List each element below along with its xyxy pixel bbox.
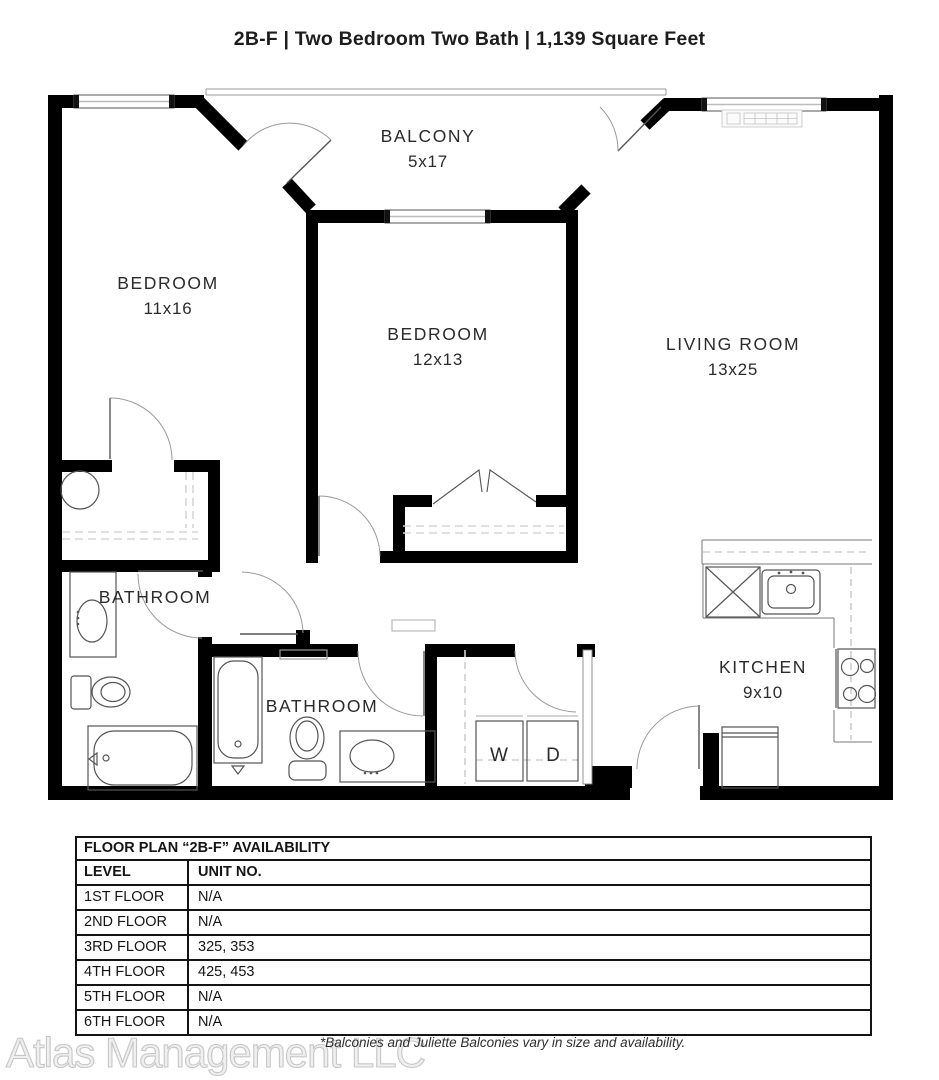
table-title: FLOOR PLAN “2B-F” AVAILABILITY bbox=[77, 838, 870, 859]
wall-top-left-a bbox=[48, 95, 74, 108]
toilet2-bowl bbox=[290, 717, 324, 759]
window-bedroom1 bbox=[74, 95, 174, 108]
floor-plan-drawing: BALCONY 5x17 BEDROOM 11x16 BEDROOM 12x13… bbox=[0, 0, 939, 820]
toilet1-bowl bbox=[92, 677, 130, 707]
door-arc-laundry bbox=[515, 651, 576, 712]
table-title-row: FLOOR PLAN “2B-F” AVAILABILITY bbox=[77, 838, 870, 859]
wall-bathroom1-right-a bbox=[198, 560, 212, 577]
toilet1-tank bbox=[71, 676, 91, 709]
row-level: 2ND FLOOR bbox=[77, 911, 189, 934]
wall-closet2-top-left bbox=[393, 495, 432, 507]
wall-exterior-bottom-left bbox=[48, 786, 630, 800]
wall-angled-bedroom1-hinge bbox=[287, 183, 311, 209]
bedroom1-dims: 11x16 bbox=[143, 299, 192, 318]
bathroom1-label: BATHROOM bbox=[99, 587, 212, 607]
table-row: 1ST FLOOR N/A bbox=[77, 884, 870, 909]
wall-bathroom1-right-b bbox=[198, 637, 212, 786]
row-unit: 425, 453 bbox=[189, 961, 870, 984]
wall-exterior-left bbox=[48, 95, 62, 800]
kitchen-dims: 9x10 bbox=[743, 683, 783, 702]
toilet2-tank bbox=[289, 761, 326, 780]
wall-angled-livingroom bbox=[645, 103, 668, 125]
window-livingroom bbox=[702, 98, 826, 111]
balcony-footnote: *Balconies and Juliette Balconies vary i… bbox=[320, 1035, 685, 1050]
counter-edges bbox=[703, 564, 872, 742]
door-arc-bedroom1 bbox=[242, 572, 303, 633]
bathroom2-label: BATHROOM bbox=[266, 696, 379, 716]
bedroom2-dims: 12x13 bbox=[413, 350, 463, 369]
heater-unit bbox=[722, 110, 802, 127]
table-row: 2ND FLOOR N/A bbox=[77, 909, 870, 934]
bedroom2-label: BEDROOM bbox=[387, 324, 489, 344]
door-arc-closet1 bbox=[110, 398, 172, 460]
door-arc-bedroom2 bbox=[319, 496, 380, 556]
balcony-railing bbox=[206, 89, 666, 95]
balcony-dims: 5x17 bbox=[408, 152, 448, 171]
door-arc-kitchen bbox=[637, 706, 699, 769]
wall-closet1-right bbox=[208, 460, 220, 572]
row-unit: 325, 353 bbox=[189, 936, 870, 959]
wall-laundry-top-left bbox=[437, 644, 515, 657]
livingroom-dims: 13x25 bbox=[708, 360, 758, 379]
tub1-spout bbox=[89, 753, 97, 765]
row-unit: N/A bbox=[189, 886, 870, 909]
door-leaf-balcony-livingroom bbox=[618, 107, 661, 151]
livingroom-label: LIVING ROOM bbox=[666, 334, 800, 354]
row-level: 5TH FLOOR bbox=[77, 986, 189, 1009]
wall-livingroom-left bbox=[566, 210, 578, 563]
table-header-level: LEVEL bbox=[77, 861, 189, 884]
sink2 bbox=[350, 740, 394, 772]
wall-bathroom1-top bbox=[58, 560, 212, 572]
window-bedroom2 bbox=[385, 210, 490, 223]
wall-closet1-top-left bbox=[58, 460, 112, 472]
row-level: 1ST FLOOR bbox=[77, 886, 189, 909]
door-leaf-balcony-bedroom1 bbox=[287, 140, 331, 183]
bathtub1 bbox=[88, 726, 197, 790]
door-arc-balcony-bedroom1 bbox=[243, 123, 331, 146]
table-header-row: LEVEL UNIT NO. bbox=[77, 859, 870, 884]
bedroom1-label: BEDROOM bbox=[117, 273, 219, 293]
windows bbox=[74, 89, 826, 223]
wall-closet2-top-right bbox=[536, 495, 578, 507]
washer-label: W bbox=[490, 745, 508, 766]
wall-kitchen-stub bbox=[703, 733, 719, 788]
wall-angled-bedroom1 bbox=[197, 100, 243, 146]
vanity1 bbox=[70, 572, 116, 657]
floor-plan-sheet: { "title": "2B-F | Two Bedroom Two Bath … bbox=[0, 0, 939, 1080]
shelf-hall bbox=[392, 620, 435, 631]
wall-bedroom2-bottom bbox=[380, 551, 578, 563]
wall-exterior-right bbox=[879, 95, 893, 800]
vanity2 bbox=[340, 731, 435, 782]
wall-top-right-b bbox=[826, 98, 879, 111]
table-row: 5TH FLOOR N/A bbox=[77, 984, 870, 1009]
table-header-unit: UNIT NO. bbox=[189, 861, 870, 884]
stove bbox=[838, 649, 875, 708]
dryer-label: D bbox=[546, 745, 560, 766]
wall-angled-bedroom2-corner bbox=[563, 189, 586, 212]
table-row: 3RD FLOOR 325, 353 bbox=[77, 934, 870, 959]
kitchen-label: KITCHEN bbox=[719, 657, 807, 677]
row-unit: N/A bbox=[189, 986, 870, 1009]
refrigerator bbox=[722, 727, 778, 788]
tub2-spout bbox=[232, 766, 244, 774]
water-heater bbox=[61, 471, 99, 509]
row-level: 4TH FLOOR bbox=[77, 961, 189, 984]
row-unit: N/A bbox=[189, 911, 870, 934]
bifold-doors-closet2 bbox=[433, 470, 536, 504]
laundry-thin-wall bbox=[583, 650, 592, 784]
availability-table: FLOOR PLAN “2B-F” AVAILABILITY LEVEL UNI… bbox=[75, 836, 872, 1036]
row-level: 3RD FLOOR bbox=[77, 936, 189, 959]
wall-bedroom-divider bbox=[306, 210, 318, 563]
balcony-label: BALCONY bbox=[381, 126, 476, 146]
door-arc-balcony-livingroom bbox=[600, 107, 618, 151]
table-row: 4TH FLOOR 425, 453 bbox=[77, 959, 870, 984]
